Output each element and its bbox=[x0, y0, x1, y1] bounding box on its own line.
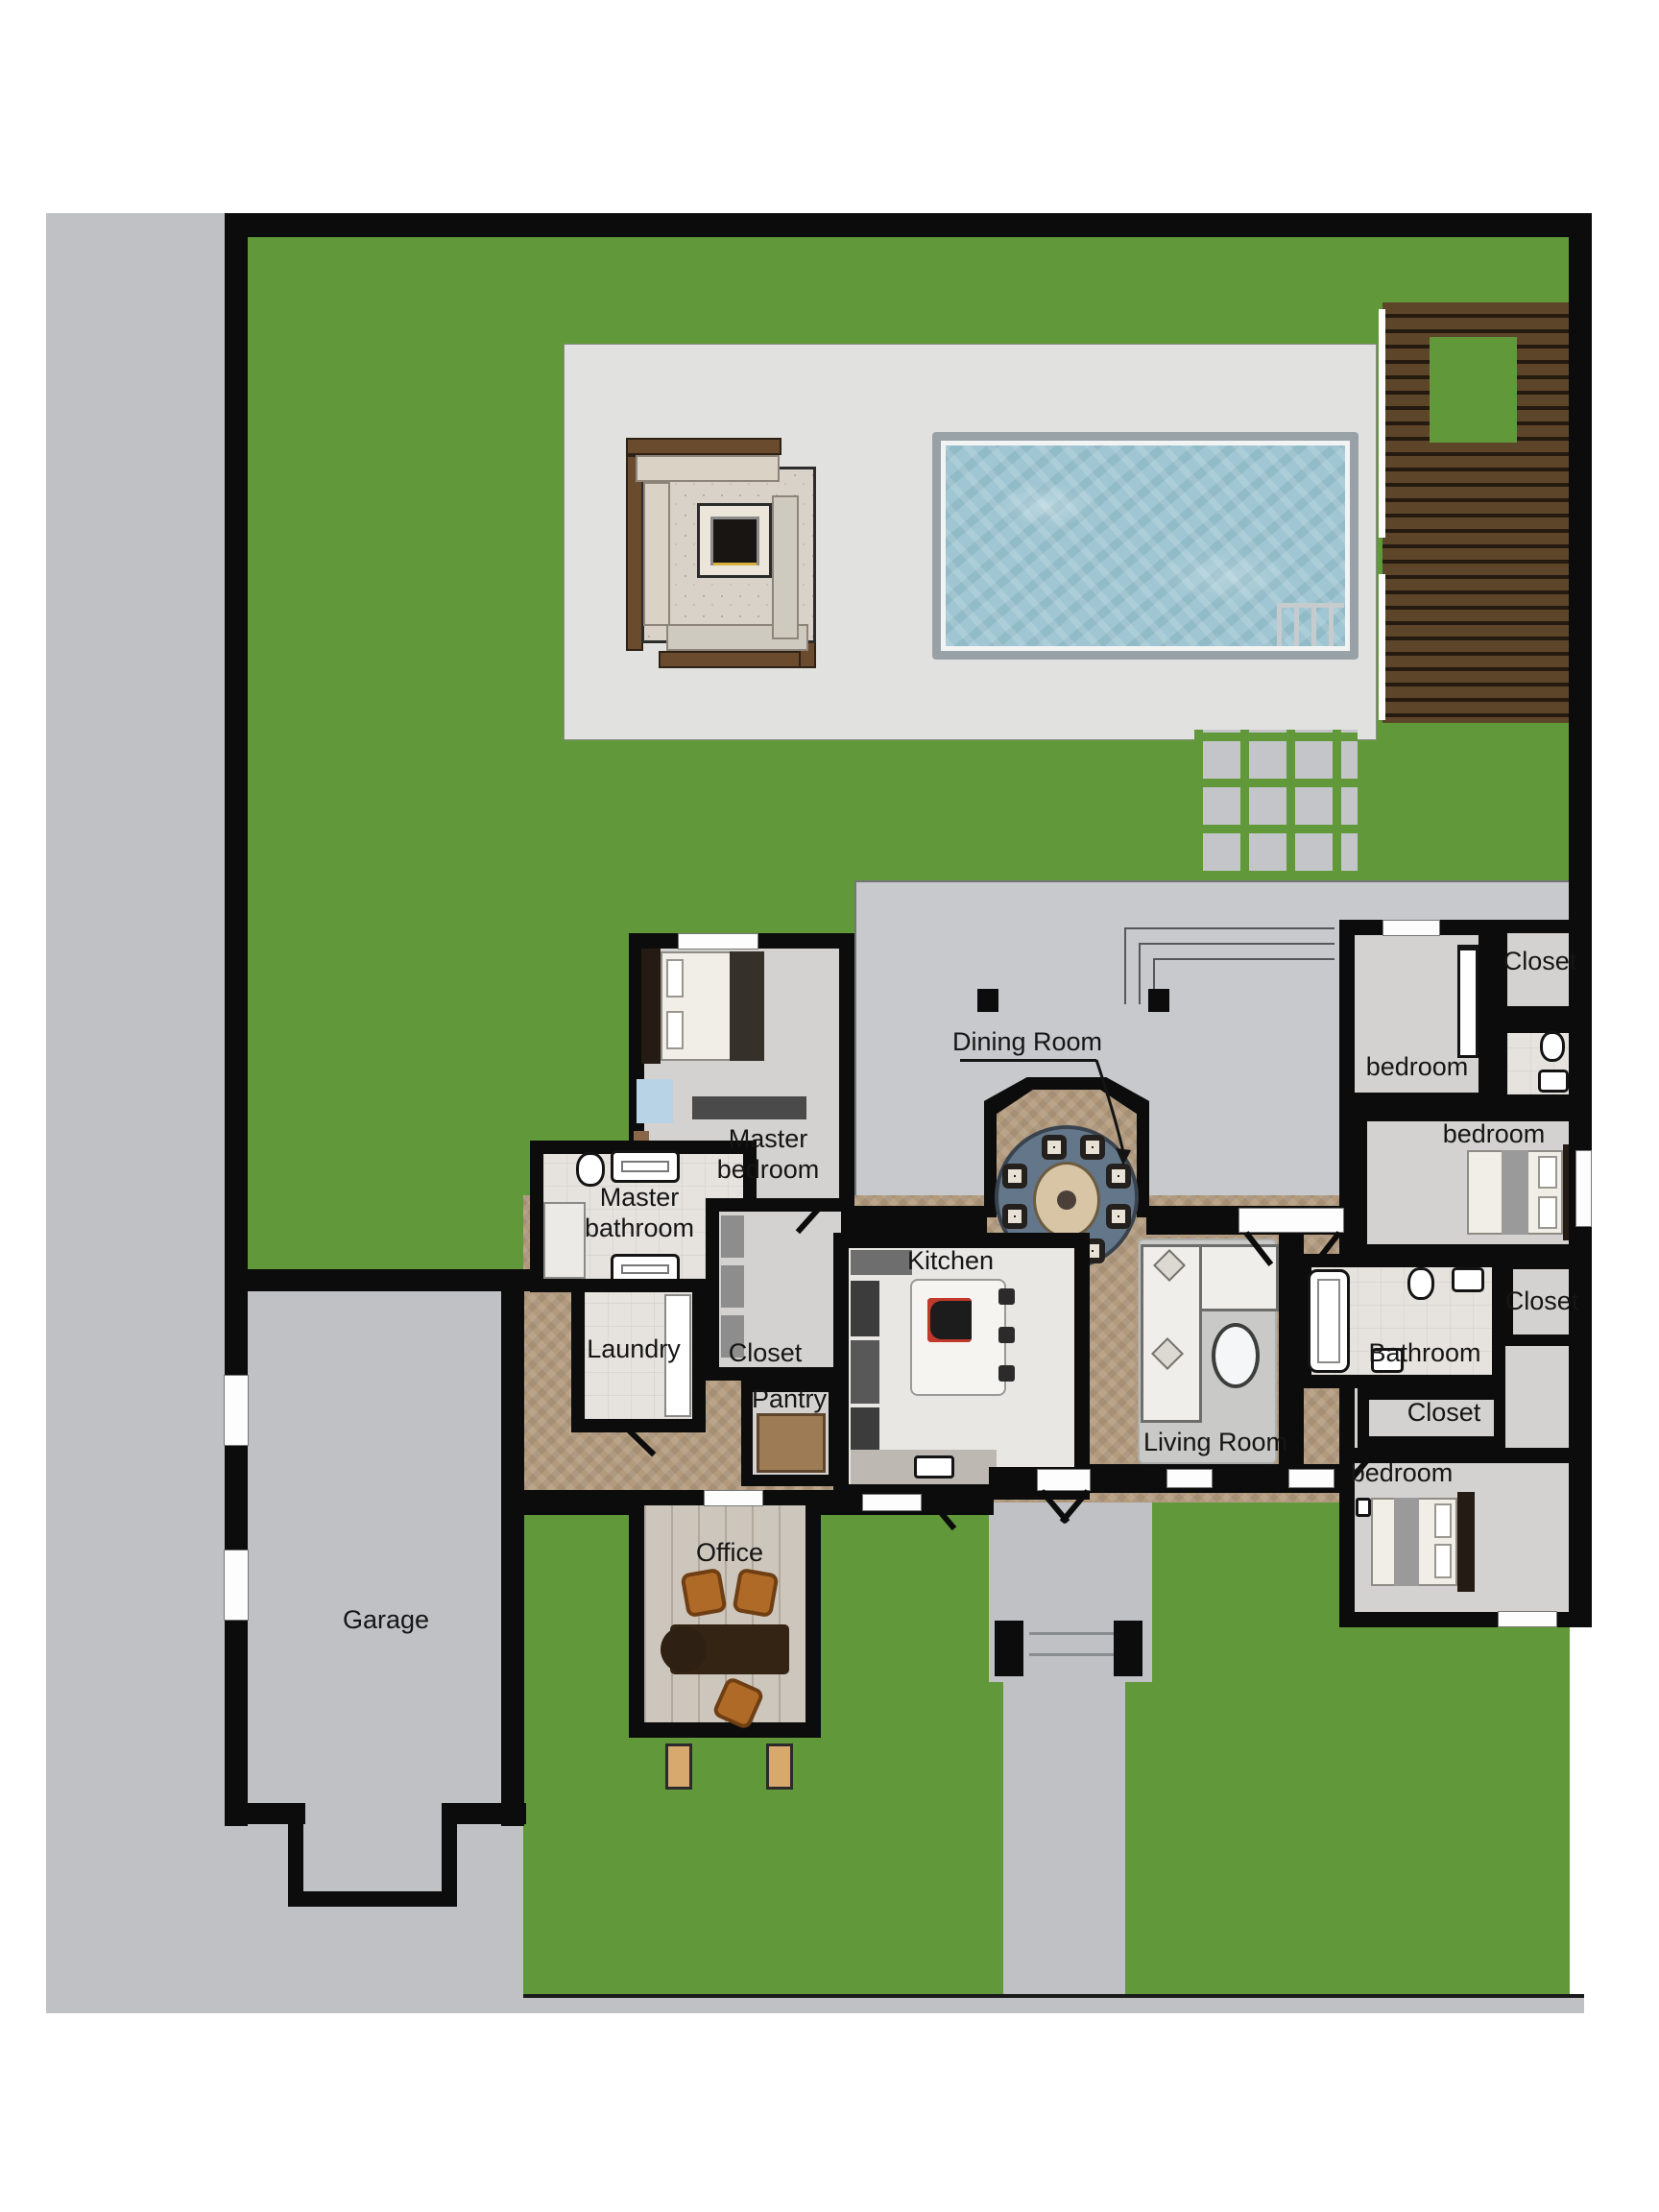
toilet-icon bbox=[576, 1152, 605, 1187]
living-window bbox=[1288, 1469, 1334, 1488]
patio-step-line bbox=[1124, 927, 1126, 1004]
master-console bbox=[689, 1096, 806, 1119]
porch-post-wood bbox=[665, 1743, 692, 1790]
pantry-shelf bbox=[757, 1413, 826, 1473]
bed-pillow bbox=[1434, 1503, 1452, 1538]
island-stool bbox=[998, 1327, 1015, 1343]
deck-rail-lower bbox=[1379, 574, 1385, 720]
bed-blanket bbox=[730, 951, 764, 1061]
cooktop-icon bbox=[927, 1298, 972, 1342]
dining-centerpiece bbox=[1057, 1190, 1076, 1210]
firepit-burner bbox=[710, 517, 759, 565]
patio-column bbox=[1148, 989, 1169, 1012]
label-closet-top-right: Closet bbox=[1503, 947, 1577, 977]
bottom-sidewalk bbox=[46, 1998, 1584, 2013]
refrigerator-icon bbox=[851, 1281, 879, 1336]
firepit-cushions-left bbox=[643, 482, 670, 626]
dining-chair bbox=[1106, 1204, 1131, 1229]
living-window bbox=[1166, 1469, 1213, 1488]
bed-pillow bbox=[666, 1011, 684, 1049]
garage-notch-bottom bbox=[288, 1891, 457, 1907]
front-door bbox=[1037, 1469, 1091, 1491]
floor-plan: Garage Office Kitchen Pantry Laundry Clo… bbox=[0, 0, 1659, 2212]
label-closet-middle-right: Closet bbox=[1505, 1286, 1579, 1317]
oven-icon bbox=[851, 1407, 879, 1450]
island-stool bbox=[998, 1288, 1015, 1305]
dining-chair bbox=[1002, 1164, 1027, 1189]
front-wall-west bbox=[523, 1490, 634, 1515]
pool-steps bbox=[1277, 603, 1344, 646]
bed-pillow bbox=[1538, 1196, 1557, 1229]
label-living-room: Living Room bbox=[1143, 1428, 1287, 1458]
firepit-cushions-right bbox=[772, 495, 799, 639]
label-master-bedroom: Master bedroom bbox=[708, 1124, 829, 1186]
bed-pillow bbox=[1434, 1544, 1452, 1578]
guest-chair bbox=[732, 1568, 779, 1619]
garage-right-wall bbox=[501, 1269, 524, 1826]
label-bedroom-middle: bedroom bbox=[1443, 1119, 1546, 1150]
bed-blanket bbox=[1502, 1150, 1528, 1235]
office-chair bbox=[661, 1626, 707, 1672]
lawn-edge-line bbox=[523, 1994, 1584, 1998]
patio-step-line bbox=[1139, 943, 1141, 1004]
boundary-wall-left bbox=[225, 213, 248, 1291]
kitchen-sink-icon bbox=[914, 1455, 954, 1479]
front-walkway bbox=[1003, 1680, 1125, 2013]
bed-blanket bbox=[1394, 1498, 1419, 1586]
label-closet-hall: Closet bbox=[1407, 1398, 1481, 1429]
patio-step-line bbox=[1124, 927, 1334, 929]
boundary-wall-right bbox=[1569, 213, 1592, 1627]
dining-chair bbox=[1002, 1204, 1027, 1229]
bed-pillow bbox=[666, 959, 684, 998]
bed-icon bbox=[641, 949, 661, 1064]
firepit-sofa-frame-top bbox=[626, 438, 781, 455]
garage-side-door bbox=[224, 1375, 249, 1446]
bedroom-window bbox=[1382, 920, 1440, 936]
label-master-closet: Closet bbox=[729, 1338, 803, 1369]
closet-shelf bbox=[721, 1215, 744, 1258]
label-kitchen: Kitchen bbox=[907, 1246, 994, 1277]
garage-lawn-wall bbox=[225, 1269, 538, 1291]
label-garage: Garage bbox=[343, 1605, 429, 1636]
label-laundry: Laundry bbox=[587, 1334, 681, 1365]
master-bedroom-window bbox=[678, 933, 758, 950]
label-dining-room: Dining Room bbox=[952, 1027, 1102, 1058]
porch-post bbox=[995, 1621, 1023, 1676]
label-office: Office bbox=[696, 1538, 763, 1569]
bedroom-window bbox=[1575, 1150, 1592, 1227]
wardrobe bbox=[1457, 945, 1479, 1058]
toilet-icon bbox=[1407, 1267, 1434, 1300]
window-seat bbox=[637, 1079, 673, 1123]
dining-chair bbox=[1042, 1135, 1067, 1160]
label-bedroom-top: bedroom bbox=[1366, 1052, 1469, 1083]
patio-french-door bbox=[1238, 1208, 1344, 1233]
dining-callout-arrow bbox=[1075, 1056, 1152, 1171]
label-master-bathroom: Master bathroom bbox=[574, 1183, 705, 1244]
nightstand bbox=[1356, 1498, 1371, 1517]
bathtub-icon bbox=[1308, 1269, 1350, 1373]
closet-shelf bbox=[721, 1265, 744, 1308]
deck-planter-cutout bbox=[1430, 337, 1517, 443]
bed-icon bbox=[1457, 1492, 1475, 1592]
coffee-table-icon bbox=[1212, 1323, 1260, 1388]
patio-step-line bbox=[1139, 943, 1334, 945]
bed-pillow bbox=[1538, 1156, 1557, 1189]
stepping-stones bbox=[1194, 730, 1358, 879]
toilet-icon bbox=[1540, 1031, 1565, 1062]
patio-column bbox=[977, 989, 998, 1012]
porch-step bbox=[1029, 1632, 1125, 1635]
porch-post-wood bbox=[766, 1743, 793, 1790]
sink-icon bbox=[1452, 1267, 1484, 1292]
label-bedroom-bottom: bedroom bbox=[1351, 1458, 1454, 1489]
firepit-sofa-frame-bottom bbox=[659, 651, 816, 668]
street-sidewalk bbox=[46, 213, 225, 2013]
rear-wall-left bbox=[833, 1206, 987, 1235]
living-front-wall bbox=[1090, 1464, 1378, 1493]
firepit-cushions-top bbox=[636, 455, 780, 482]
garage-side-door bbox=[224, 1550, 249, 1621]
deck-rail-upper bbox=[1379, 309, 1385, 538]
porch-step bbox=[1029, 1653, 1125, 1656]
porch-post bbox=[1114, 1621, 1142, 1676]
kitchen-counter-left bbox=[851, 1340, 879, 1404]
sink-icon bbox=[611, 1150, 680, 1183]
office-door bbox=[704, 1490, 763, 1506]
bedroom-window bbox=[1498, 1611, 1557, 1627]
guest-chair bbox=[680, 1568, 727, 1619]
patio-step-line bbox=[1153, 958, 1334, 960]
garage-bottom-wall-right bbox=[453, 1803, 526, 1824]
label-bathroom: Bathroom bbox=[1368, 1338, 1480, 1369]
island-stool bbox=[998, 1365, 1015, 1382]
front-window bbox=[862, 1494, 922, 1511]
label-pantry: Pantry bbox=[752, 1384, 827, 1415]
sink-icon bbox=[1538, 1070, 1569, 1093]
kitchen-counter-top bbox=[851, 1250, 912, 1275]
boundary-wall-top bbox=[225, 213, 1592, 237]
